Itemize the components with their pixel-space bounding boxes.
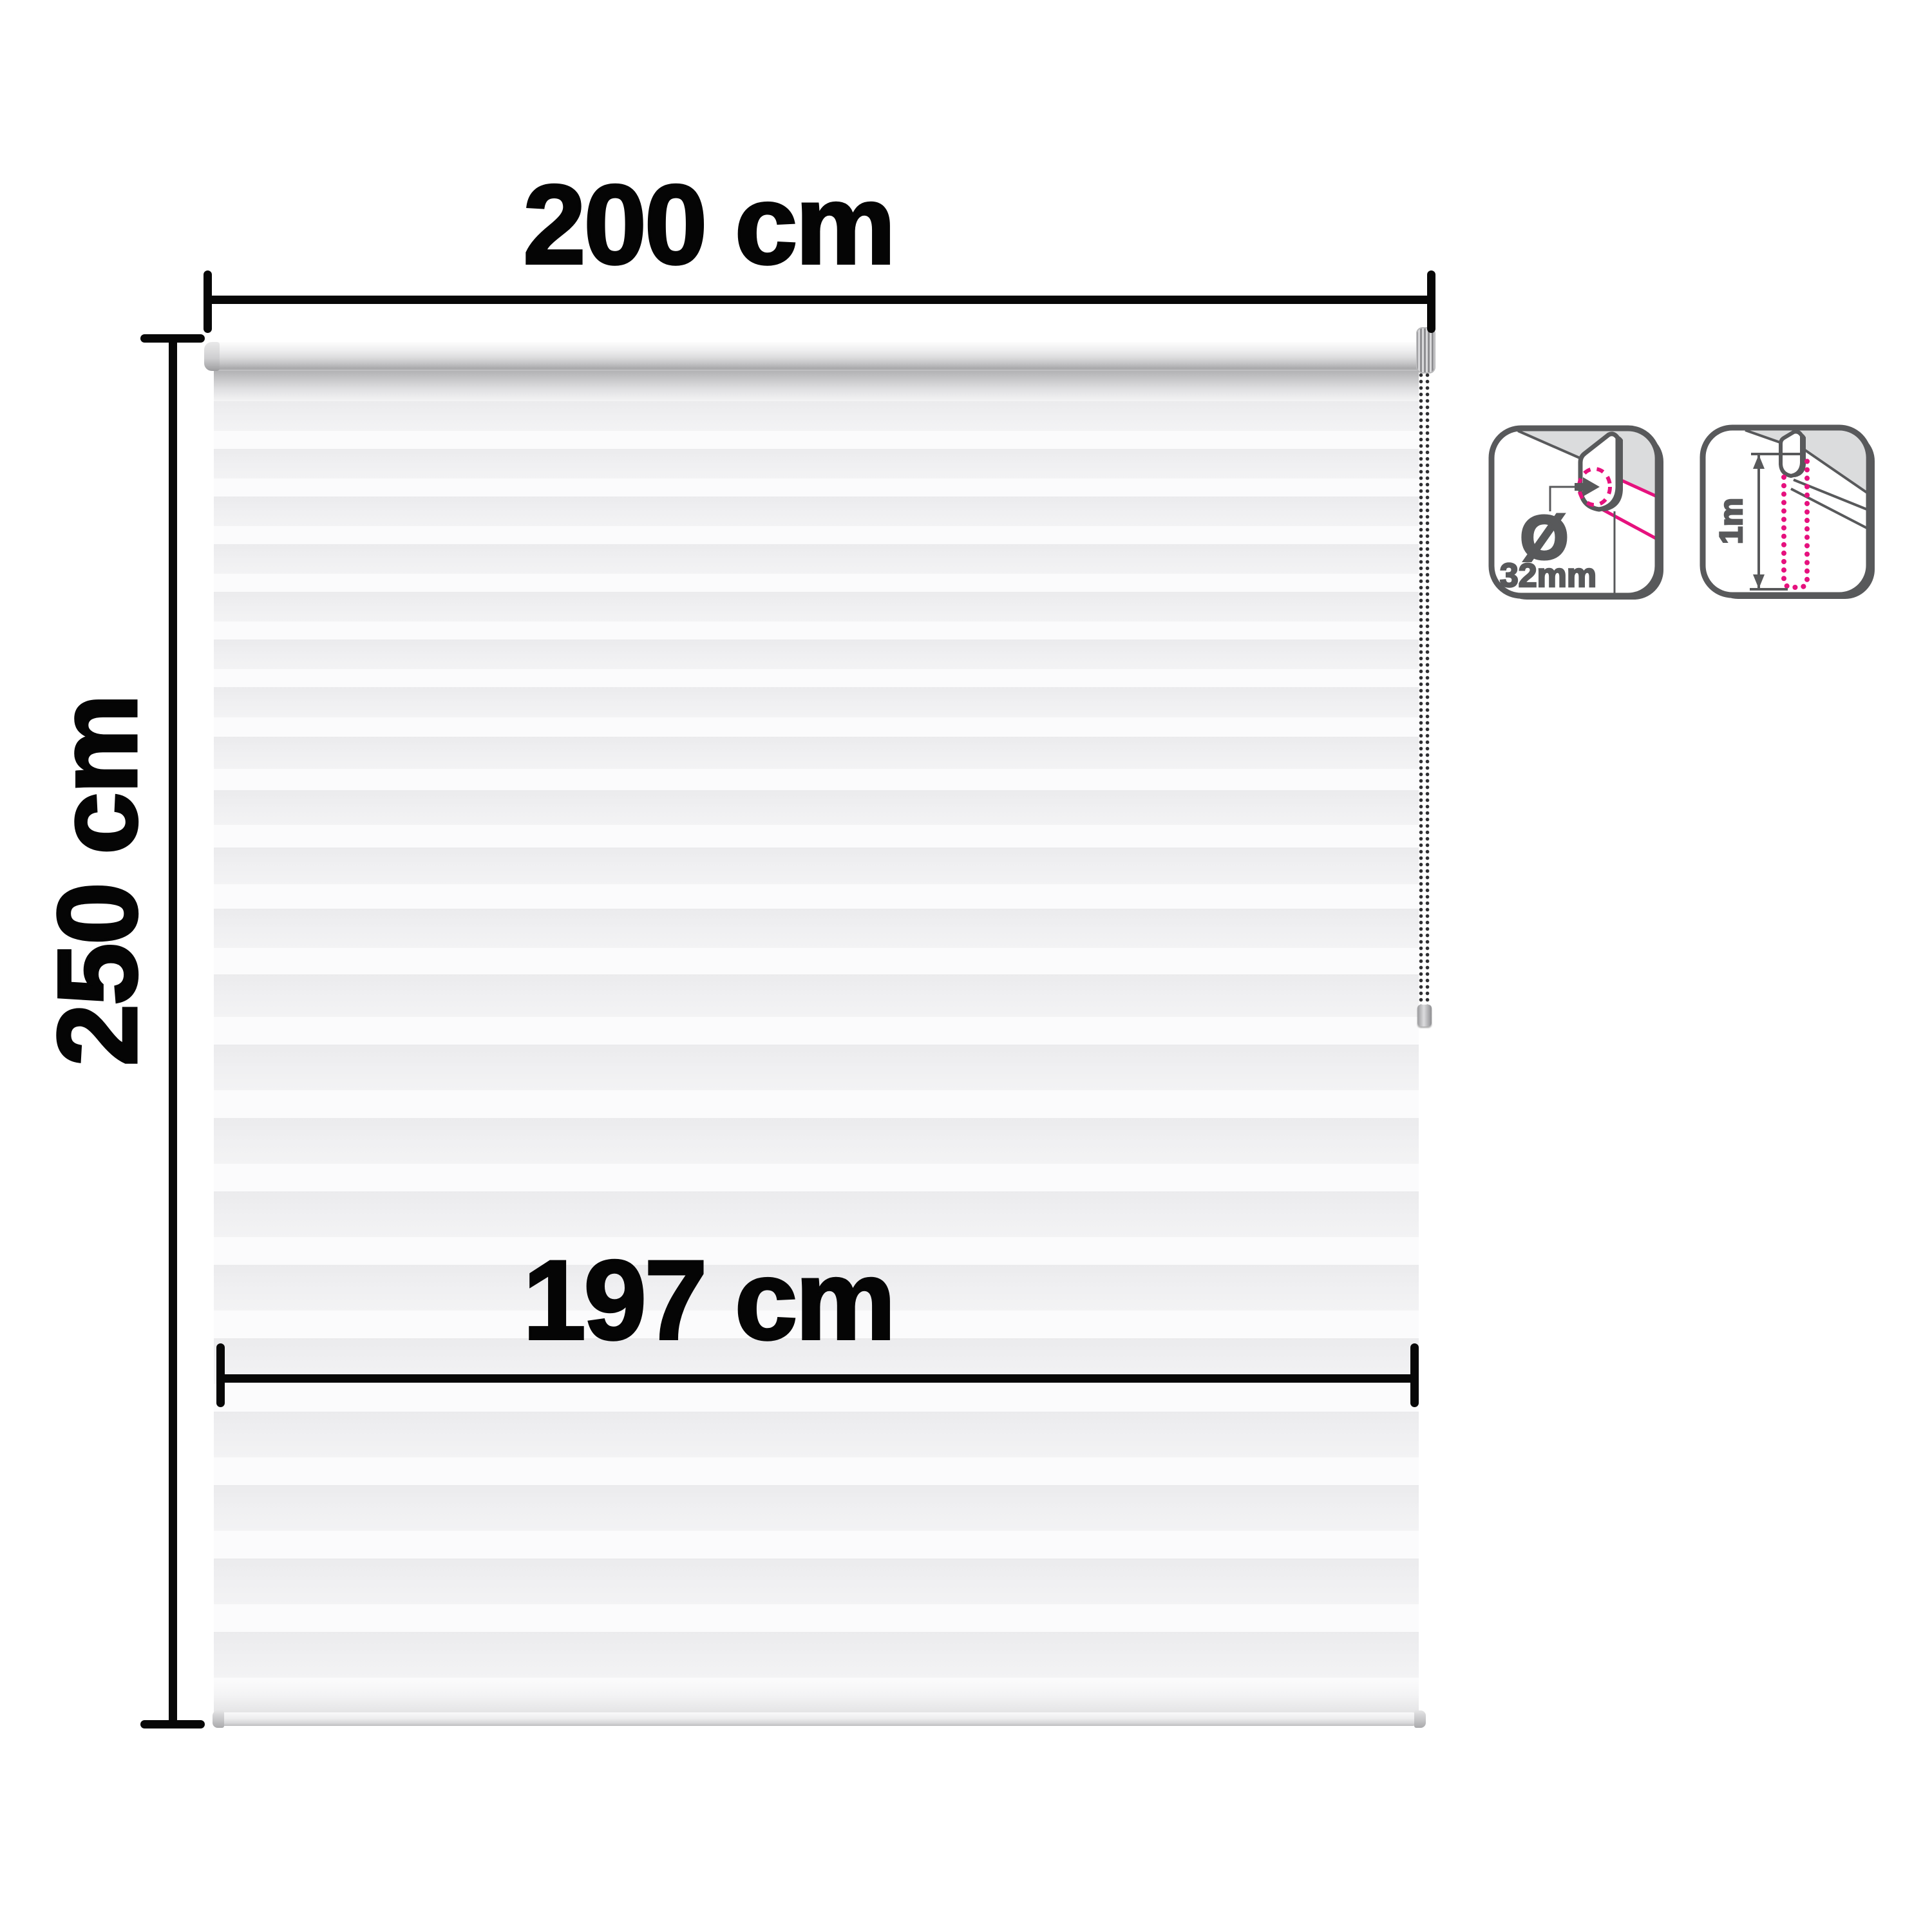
product-dimension-diagram: { "diagram": { "width_label": "200 cm", … bbox=[0, 0, 1932, 1932]
fabric-stripe bbox=[214, 449, 1419, 478]
tube-diameter-badge: Ø 32mm bbox=[1486, 425, 1669, 605]
fabric-bottom-shadow bbox=[214, 1679, 1419, 1714]
fabric-stripe bbox=[214, 848, 1419, 884]
chain-drop-badge: 1m bbox=[1697, 424, 1880, 605]
chain-drop-value: 1m bbox=[1713, 498, 1749, 544]
width-dimension-label: 200 cm bbox=[386, 169, 1030, 281]
fabric-width-dimension-tick-left bbox=[216, 1343, 225, 1407]
arrow-tail bbox=[1575, 483, 1584, 491]
fabric-stripe bbox=[214, 544, 1419, 574]
tube-diameter-icon: Ø 32mm bbox=[1486, 425, 1669, 605]
width-dimension-line bbox=[207, 296, 1432, 304]
fabric-stripe bbox=[214, 974, 1419, 1017]
fabric-stripe bbox=[214, 401, 1419, 431]
chain-mechanism bbox=[1416, 327, 1435, 374]
fabric-stripe bbox=[214, 1558, 1419, 1604]
height-dimension-tick-top bbox=[140, 334, 205, 343]
height-dimension-label: 250 cm bbox=[42, 696, 155, 1066]
fabric-stripe bbox=[214, 592, 1419, 621]
width-dimension-tick-right bbox=[1427, 270, 1435, 333]
fabric-stripe bbox=[214, 1485, 1419, 1531]
fabric-stripe bbox=[214, 497, 1419, 526]
blind-fabric bbox=[214, 371, 1419, 1714]
fabric-width-dimension-line bbox=[220, 1374, 1415, 1383]
bead-chain bbox=[1425, 372, 1430, 1007]
bottom-bar-cap-left bbox=[213, 1710, 224, 1728]
diameter-value: 32mm bbox=[1500, 557, 1596, 594]
fabric-stripe bbox=[214, 737, 1419, 769]
height-dimension-line bbox=[169, 338, 177, 1725]
fabric-stripe bbox=[214, 1191, 1419, 1237]
chain-drop-icon: 1m bbox=[1697, 424, 1880, 605]
height-dimension-tick-bottom bbox=[140, 1720, 205, 1728]
fabric-stripe bbox=[214, 1632, 1419, 1678]
tube-end-cap-left bbox=[204, 342, 220, 371]
fabric-stripe bbox=[214, 639, 1419, 669]
roller-tube bbox=[204, 342, 1433, 371]
fabric-width-dimension-label: 197 cm bbox=[386, 1244, 1030, 1357]
fabric-stripe bbox=[214, 909, 1419, 949]
fabric-width-dimension-tick-right bbox=[1410, 1343, 1419, 1407]
fabric-stripe bbox=[214, 687, 1419, 717]
bottom-bar bbox=[214, 1712, 1419, 1726]
bottom-bar-cap-right bbox=[1414, 1710, 1426, 1728]
fabric-stripe bbox=[214, 1412, 1419, 1457]
width-dimension-tick-left bbox=[204, 270, 212, 333]
fabric-stripe bbox=[214, 1045, 1419, 1090]
fabric-stripe bbox=[214, 1118, 1419, 1164]
chain-connector bbox=[1417, 1005, 1432, 1027]
fabric-stripe bbox=[214, 790, 1419, 824]
bead-chain bbox=[1419, 372, 1423, 1007]
